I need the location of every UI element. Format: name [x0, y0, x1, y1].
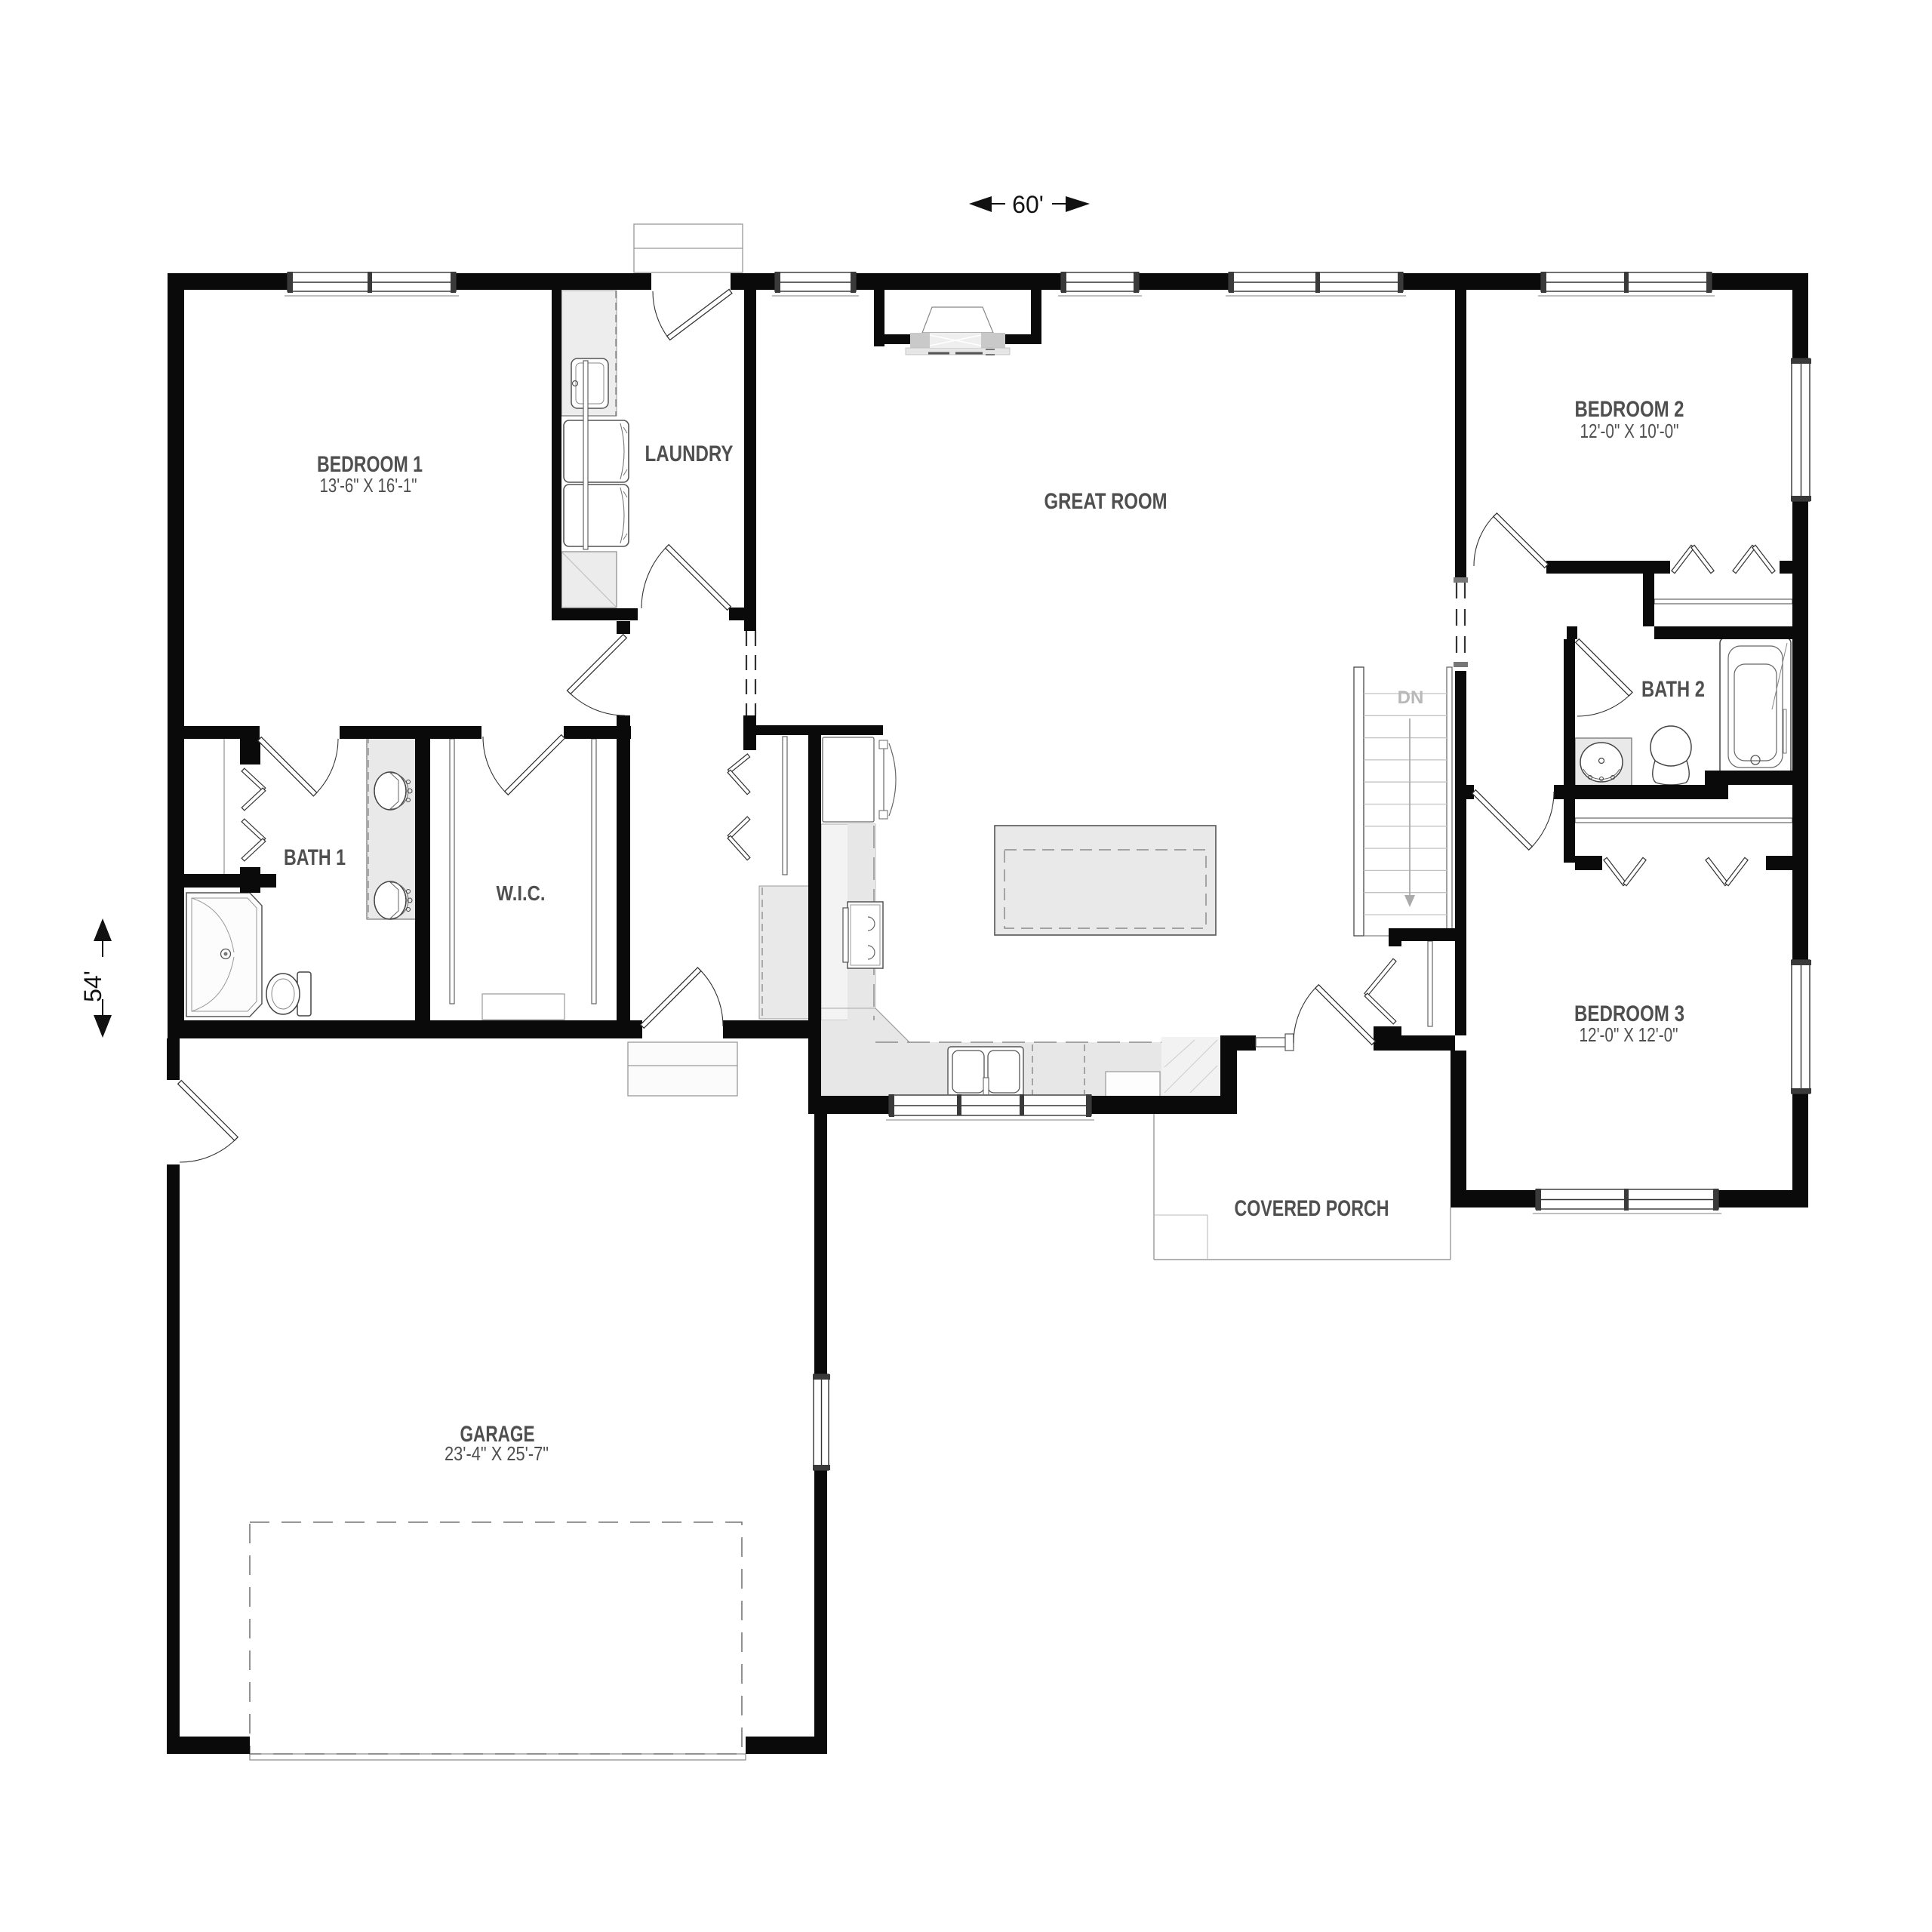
svg-text:23'-4" X 25'-7": 23'-4" X 25'-7" [445, 1442, 549, 1465]
svg-text:12'-0" X 12'-0": 12'-0" X 12'-0" [1580, 1023, 1678, 1046]
svg-text:LAUNDRY: LAUNDRY [645, 441, 734, 466]
svg-text:BATH 1: BATH 1 [284, 845, 346, 870]
svg-text:GREAT ROOM: GREAT ROOM [1044, 489, 1168, 514]
svg-text:DN: DN [1398, 688, 1424, 708]
svg-text:COVERED PORCH: COVERED PORCH [1235, 1196, 1389, 1221]
svg-text:13'-6" X 16'-1": 13'-6" X 16'-1" [320, 474, 417, 497]
svg-text:W.I.C.: W.I.C. [497, 881, 546, 905]
svg-text:54': 54' [79, 971, 106, 1002]
svg-text:60': 60' [1012, 191, 1044, 218]
svg-text:BEDROOM 2: BEDROOM 2 [1575, 397, 1684, 422]
svg-text:12'-0" X 10'-0": 12'-0" X 10'-0" [1580, 420, 1679, 442]
svg-text:BATH 2: BATH 2 [1641, 677, 1705, 702]
